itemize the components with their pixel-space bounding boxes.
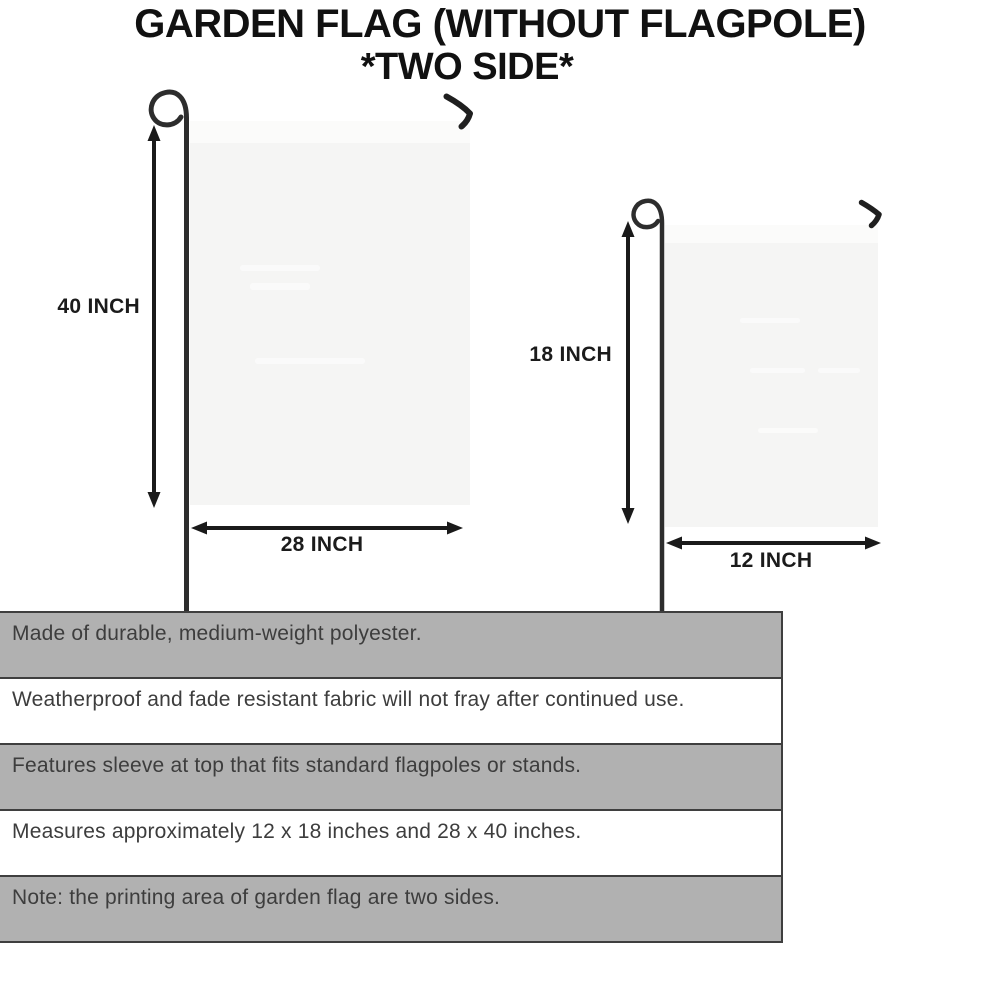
small-flag-width-arrow: [666, 537, 881, 550]
small-flag-hook-icon: [862, 203, 880, 226]
spec-row-note: Note: the printing area of garden flag a…: [0, 875, 781, 941]
large-flag-fabric: [190, 121, 470, 505]
spec-row-measurements: Measures approximately 12 x 18 inches an…: [0, 809, 781, 875]
large-flag-height-arrow: [148, 125, 161, 508]
large-flagpole-icon: [151, 92, 186, 611]
spec-row-material: Made of durable, medium-weight polyester…: [0, 613, 781, 677]
spec-table: Made of durable, medium-weight polyester…: [0, 611, 783, 943]
small-flag-height-arrow: [622, 221, 635, 524]
small-flag-width-label: 12 INCH: [671, 549, 871, 573]
spec-row-sleeve: Features sleeve at top that fits standar…: [0, 743, 781, 809]
large-flag-width-label: 28 INCH: [222, 533, 422, 557]
small-flagpole-icon: [634, 201, 662, 611]
spec-row-weatherproof: Weatherproof and fade resistant fabric w…: [0, 677, 781, 743]
large-flag-sleeve: [190, 121, 470, 143]
large-flag-height-label: 40 INCH: [28, 295, 140, 319]
small-flag-sleeve: [665, 225, 878, 243]
small-flag-height-label: 18 INCH: [498, 343, 612, 367]
small-flag-fabric: [665, 225, 878, 527]
garden-flag-infographic: GARDEN FLAG (WITHOUT FLAGPOLE) *TWO SIDE…: [0, 0, 1000, 1000]
